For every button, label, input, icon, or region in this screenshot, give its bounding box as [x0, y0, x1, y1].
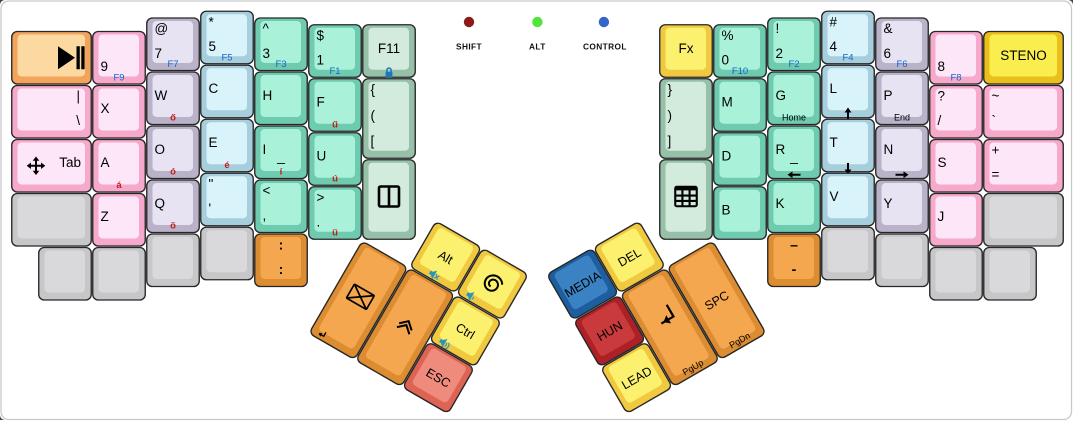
svg-text:F10: F10: [732, 66, 748, 77]
svg-text:%: %: [722, 28, 734, 43]
svg-text:|: |: [76, 89, 80, 104]
svg-text:_: _: [789, 148, 798, 164]
svg-text:3: 3: [263, 46, 271, 61]
svg-text:F7: F7: [167, 59, 178, 70]
svg-text:?: ?: [938, 89, 946, 104]
svg-text:ü: ü: [332, 227, 338, 238]
svg-text:0: 0: [722, 53, 730, 68]
svg-text:F4: F4: [842, 52, 853, 63]
svg-text:8: 8: [938, 59, 946, 74]
svg-text:}: }: [668, 82, 673, 97]
svg-text:I: I: [263, 142, 267, 157]
svg-text:ű: ű: [332, 119, 338, 130]
svg-text:ó: ó: [170, 167, 176, 178]
svg-text:<: <: [263, 183, 271, 198]
svg-text:1: 1: [317, 53, 325, 68]
svg-text::: :: [279, 261, 284, 277]
svg-text:/: /: [938, 113, 942, 128]
svg-text:P: P: [884, 88, 893, 103]
svg-text:S: S: [938, 155, 947, 170]
svg-text:5: 5: [209, 39, 217, 54]
svg-text:2: 2: [776, 46, 784, 61]
svg-text:M: M: [722, 95, 733, 110]
svg-text:N: N: [884, 142, 894, 157]
svg-text:Home: Home: [782, 113, 806, 123]
svg-text:E: E: [209, 135, 218, 150]
svg-text:STENO: STENO: [1000, 48, 1047, 63]
svg-text:é: é: [224, 160, 229, 171]
svg-text:H: H: [263, 88, 273, 103]
svg-text:F11: F11: [378, 41, 400, 56]
svg-text:&: &: [884, 21, 893, 36]
svg-text:ú: ú: [332, 173, 338, 184]
svg-text:F9: F9: [113, 73, 124, 84]
svg-text:^: ^: [263, 21, 270, 36]
svg-text:K: K: [776, 196, 785, 211]
svg-text:$: $: [317, 28, 325, 43]
svg-text:CONTROL: CONTROL: [583, 42, 627, 52]
svg-text:,: ,: [263, 208, 267, 223]
svg-text:Y: Y: [884, 196, 893, 211]
svg-text:F3: F3: [275, 59, 286, 70]
svg-text:F: F: [317, 95, 325, 110]
svg-text:O: O: [155, 142, 166, 157]
svg-text::: :: [279, 237, 284, 253]
svg-text:G: G: [776, 88, 787, 103]
svg-text:#: #: [830, 14, 838, 29]
svg-text:*: *: [209, 14, 215, 29]
svg-text:6: 6: [884, 46, 892, 61]
svg-text:7: 7: [155, 46, 163, 61]
svg-text:í: í: [280, 167, 283, 178]
svg-text:á: á: [116, 180, 122, 191]
svg-text:=: =: [992, 167, 1000, 182]
svg-text:Q: Q: [155, 196, 166, 211]
svg-text:.: .: [317, 215, 321, 230]
svg-text:`: `: [992, 113, 997, 128]
svg-text:!: !: [776, 21, 780, 36]
svg-text:X: X: [101, 101, 110, 116]
svg-text:F5: F5: [221, 52, 232, 63]
svg-text:–: –: [790, 237, 798, 253]
svg-text:[: [: [371, 134, 375, 149]
svg-text:): ): [668, 108, 673, 123]
svg-text:J: J: [938, 209, 945, 224]
svg-text:@: @: [155, 21, 169, 36]
svg-text:ő: ő: [170, 113, 176, 124]
svg-text:Fx: Fx: [679, 41, 694, 56]
svg-text:Tab: Tab: [59, 155, 81, 170]
svg-text:": ": [209, 176, 214, 191]
svg-text:C: C: [209, 81, 219, 96]
svg-text:F1: F1: [329, 66, 340, 77]
svg-text:-: -: [792, 261, 797, 277]
svg-text:': ': [209, 201, 212, 216]
svg-text:V: V: [830, 189, 839, 204]
svg-text:~: ~: [992, 89, 1000, 104]
svg-text:{: {: [371, 82, 376, 97]
svg-text:T: T: [830, 135, 838, 150]
svg-text:B: B: [722, 203, 731, 218]
svg-text:9: 9: [101, 59, 109, 74]
svg-text:F6: F6: [896, 59, 907, 70]
svg-text:ö: ö: [170, 221, 176, 232]
svg-text:SHIFT: SHIFT: [456, 42, 482, 52]
svg-text:R: R: [776, 142, 786, 157]
svg-text:U: U: [317, 149, 327, 164]
svg-text:(: (: [371, 108, 376, 123]
svg-text:L: L: [830, 81, 838, 96]
svg-text:ALT: ALT: [529, 42, 546, 52]
svg-text:+: +: [992, 143, 1000, 158]
svg-text:A: A: [101, 155, 110, 170]
svg-text:>: >: [317, 190, 325, 205]
svg-text:\: \: [76, 113, 80, 128]
svg-text:End: End: [894, 113, 910, 123]
svg-text:F8: F8: [950, 73, 961, 84]
svg-text:4: 4: [830, 39, 838, 54]
svg-text:F2: F2: [788, 59, 799, 70]
svg-text:]: ]: [668, 134, 672, 149]
svg-text:D: D: [722, 149, 732, 164]
svg-text:_: _: [276, 148, 285, 164]
svg-text:W: W: [155, 88, 168, 103]
svg-text:Z: Z: [101, 209, 109, 224]
